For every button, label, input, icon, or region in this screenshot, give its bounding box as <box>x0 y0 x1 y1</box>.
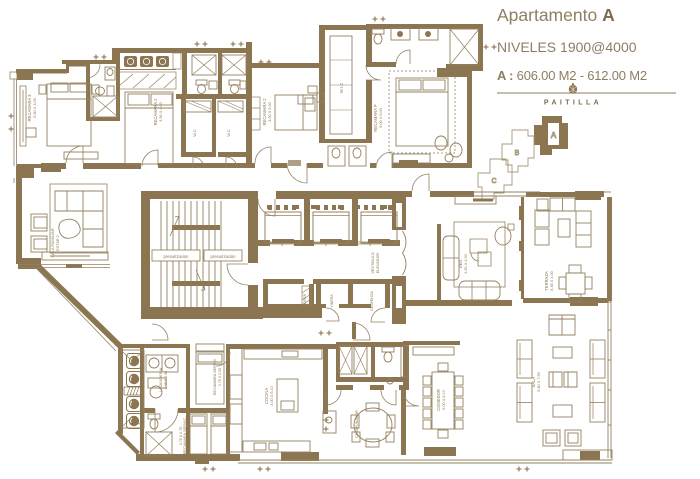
svg-text:C: C <box>491 178 496 185</box>
svg-text:SALA FAMILIAR: SALA FAMILIAR <box>50 228 55 257</box>
svg-text:5.00 X 5.00: 5.00 X 5.00 <box>379 108 383 127</box>
svg-text:6.35 X 4.00: 6.35 X 4.00 <box>550 271 554 290</box>
svg-text:W.I.C: W.I.C <box>339 83 344 93</box>
svg-text:W.C: W.C <box>192 129 197 137</box>
svg-text:RECAMARA 3: RECAMARA 3 <box>27 94 32 122</box>
svg-text:DESPENSA: DESPENSA <box>370 291 374 311</box>
svg-text:W.C: W.C <box>226 129 231 137</box>
svg-text:VINERA: VINERA <box>330 294 334 308</box>
svg-text:PAITILLA: PAITILLA <box>544 100 602 107</box>
svg-text:RECAMARA P: RECAMARA P <box>373 104 378 132</box>
svg-text:5.80 X 7.90: 5.80 X 7.90 <box>537 372 541 391</box>
svg-text:RECAMARA 2: RECAMARA 2 <box>262 98 267 126</box>
svg-text:FOYER: FOYER <box>303 293 307 306</box>
svg-text:LAVANDERIA: LAVANDERIA <box>158 367 163 392</box>
svg-text:B: B <box>515 150 520 157</box>
svg-text:VESTIBULO: VESTIBULO <box>371 252 375 273</box>
svg-text:A: A <box>551 131 557 140</box>
svg-text:RECAMARA SERVIC: RECAMARA SERVIC <box>183 418 187 455</box>
svg-text:RECAMARA SERVIC: RECAMARA SERVIC <box>213 359 217 396</box>
svg-text:RECAMARA 2: RECAMARA 2 <box>153 98 158 126</box>
svg-text:ESTAR 2: ESTAR 2 <box>56 235 60 251</box>
svg-text:3.50 X 4.00: 3.50 X 4.00 <box>159 102 163 121</box>
svg-text:COCINA: COCINA <box>264 388 269 404</box>
svg-text:ELEVADOR: ELEVADOR <box>376 253 380 274</box>
svg-text:presurizacion: presurizacion <box>164 254 190 259</box>
svg-text:TERRAZA: TERRAZA <box>544 271 549 291</box>
svg-text:4.50 X 4.90: 4.50 X 4.90 <box>464 254 468 273</box>
svg-text:COMEDOR: COMEDOR <box>436 389 441 411</box>
svg-text:5.50 X 3.05: 5.50 X 3.05 <box>33 98 37 117</box>
svg-text:2.40 X 2.90: 2.40 X 2.90 <box>164 371 168 389</box>
svg-text:3.00 X 6.10: 3.00 X 6.10 <box>270 386 274 405</box>
svg-text:3.50 X 4.00: 3.50 X 4.00 <box>268 102 272 121</box>
svg-text:DESAYUNADOR: DESAYUNADOR <box>355 410 359 438</box>
svg-text:SALA: SALA <box>531 376 536 387</box>
svg-text:5.00 X 6.10: 5.00 X 6.10 <box>442 390 446 409</box>
svg-text:presurizacion: presurizacion <box>211 254 237 259</box>
svg-text:DEN: DEN <box>458 260 463 269</box>
svg-text:3.75 X 2.50: 3.75 X 2.50 <box>218 368 222 386</box>
svg-text:3.75 X 2.75: 3.75 X 2.75 <box>179 427 183 445</box>
